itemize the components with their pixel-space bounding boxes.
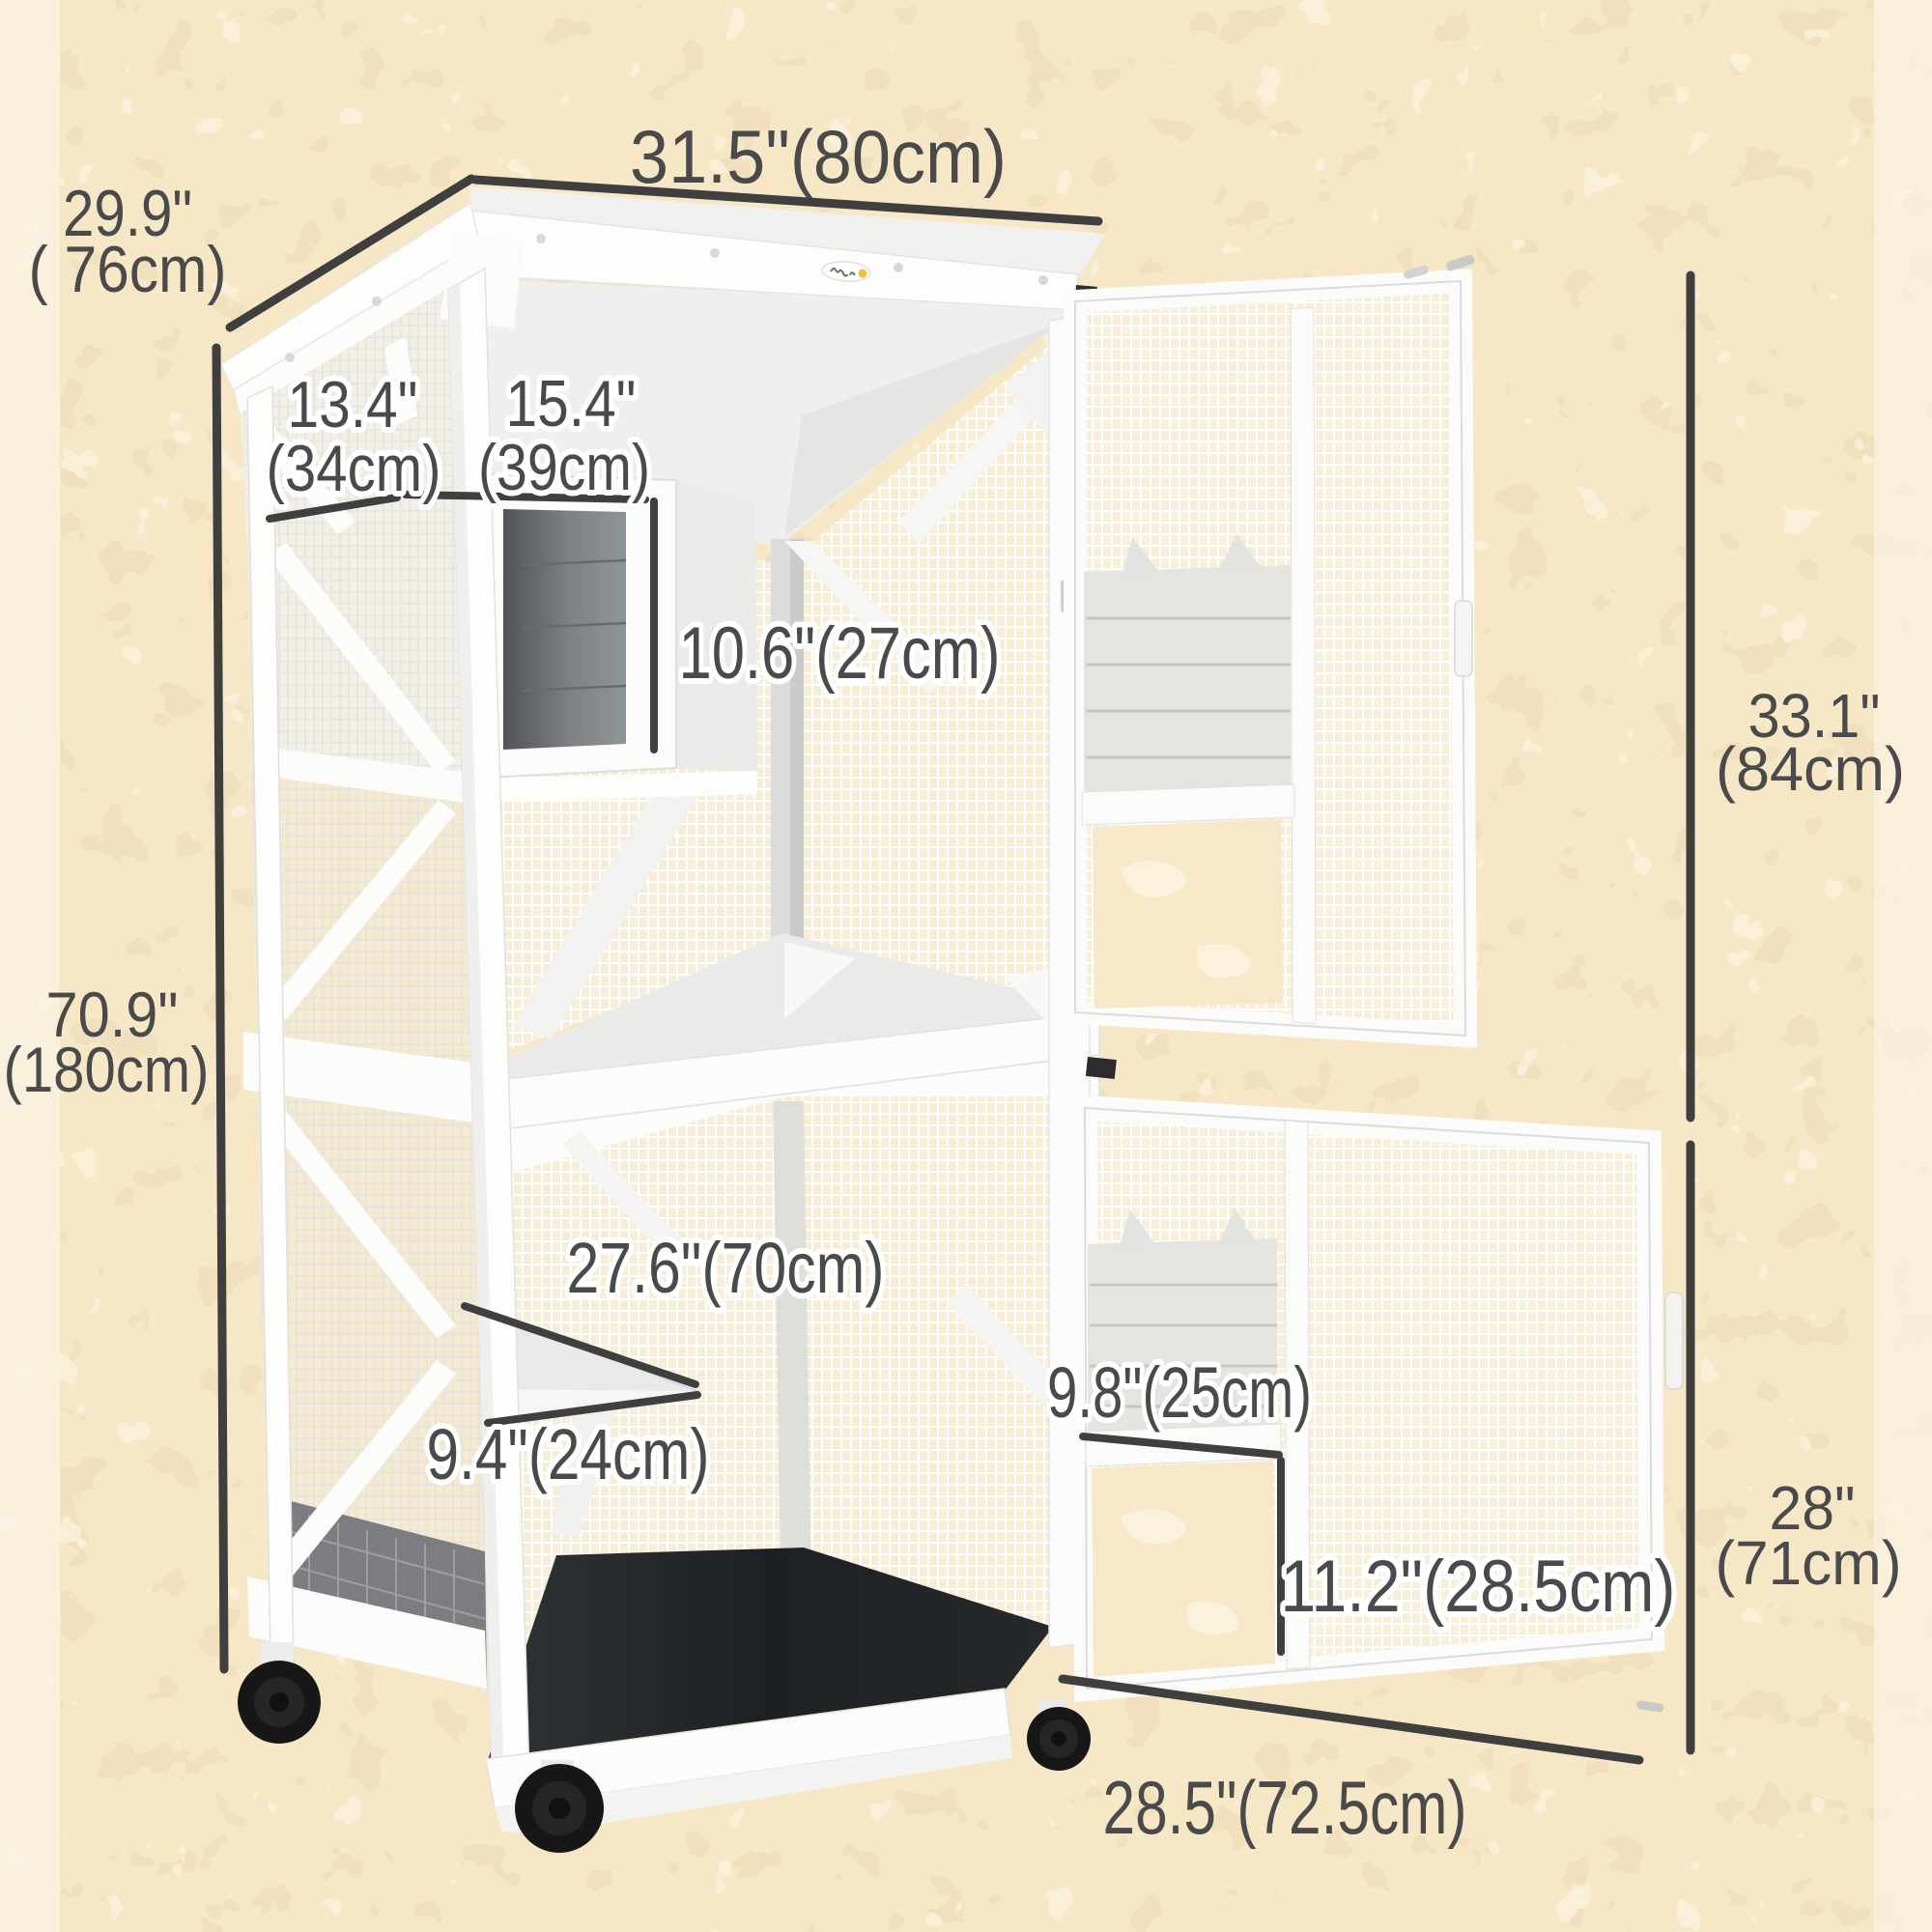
- svg-text:10.6"(27cm): 10.6"(27cm): [679, 612, 1001, 695]
- svg-text:(34cm): (34cm): [267, 432, 441, 505]
- svg-text:28.5"(72.5cm): 28.5"(72.5cm): [1103, 1765, 1467, 1850]
- svg-text:(84cm): (84cm): [1716, 734, 1905, 804]
- svg-text:11.2"(28.5cm): 11.2"(28.5cm): [1281, 1546, 1676, 1628]
- svg-text:(39cm): (39cm): [478, 431, 650, 504]
- svg-text:( 76cm): ( 76cm): [29, 233, 227, 306]
- svg-text:31.5"(80cm): 31.5"(80cm): [630, 114, 1007, 199]
- svg-text:27.6"(70cm): 27.6"(70cm): [567, 1228, 885, 1308]
- svg-text:(71cm): (71cm): [1716, 1528, 1902, 1598]
- svg-text:(180cm): (180cm): [4, 1034, 210, 1105]
- svg-text:15.4": 15.4": [506, 367, 637, 440]
- svg-text:9.4"(24cm): 9.4"(24cm): [427, 1414, 710, 1494]
- svg-text:9.8"(25cm): 9.8"(25cm): [1047, 1352, 1312, 1433]
- svg-text:13.4": 13.4": [288, 368, 418, 441]
